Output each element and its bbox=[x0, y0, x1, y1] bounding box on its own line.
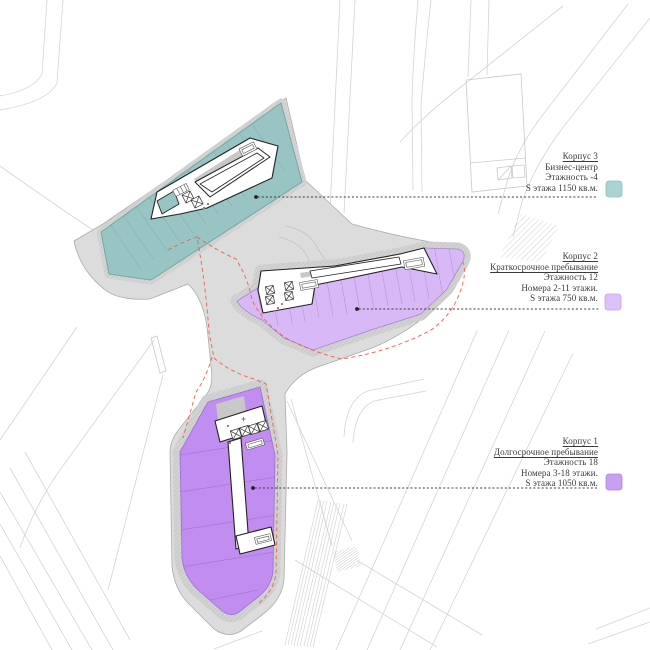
legend-korpus1-area: S этажа 1050 кв.м. bbox=[494, 478, 598, 489]
leader-dot-korpus2 bbox=[355, 307, 359, 311]
legend-korpus3-floors: Этажность -4 bbox=[526, 172, 598, 183]
legend-korpus1-rooms: Номера 3-18 этажи. bbox=[494, 468, 598, 479]
legend-korpus2-title: Корпус 2 bbox=[490, 251, 598, 262]
legend-korpus2-area: S этажа 750 кв.м. bbox=[490, 293, 598, 304]
legend-korpus2-subtitle: Краткосрочное пребывание bbox=[490, 262, 598, 273]
legend-swatch-korpus3 bbox=[606, 181, 622, 197]
leader-dot-korpus1 bbox=[251, 486, 255, 490]
legend-korpus1: Корпус 1 Долгосрочное пребывание Этажнос… bbox=[494, 436, 598, 489]
legend-korpus3-area: S этажа 1150 кв.м. bbox=[526, 183, 598, 194]
leader-dot-korpus3 bbox=[254, 195, 258, 199]
legend-korpus3-title: Корпус 3 bbox=[526, 151, 598, 162]
legend-korpus3: Корпус 3 Бизнес-центр Этажность -4 S эта… bbox=[526, 151, 598, 193]
legend-korpus2-rooms: Номера 2-11 этажи. bbox=[490, 283, 598, 294]
legend-korpus2: Корпус 2 Краткосрочное пребывание Этажно… bbox=[490, 251, 598, 304]
legend-swatch-korpus2 bbox=[605, 294, 621, 310]
legend-korpus1-floors: Этажность 18 bbox=[494, 457, 598, 468]
legend-swatch-korpus1 bbox=[606, 474, 622, 490]
legend-swatches bbox=[605, 181, 622, 490]
legend-korpus3-subtitle: Бизнес-центр bbox=[526, 162, 598, 173]
site-plan-page: Корпус 3 Бизнес-центр Этажность -4 S эта… bbox=[0, 0, 650, 650]
legend-korpus1-subtitle: Долгосрочное пребывание bbox=[494, 447, 598, 458]
legend-korpus2-floors: Этажность 12 bbox=[490, 272, 598, 283]
legend-korpus1-title: Корпус 1 bbox=[494, 436, 598, 447]
site-plan-drawing bbox=[0, 0, 650, 650]
